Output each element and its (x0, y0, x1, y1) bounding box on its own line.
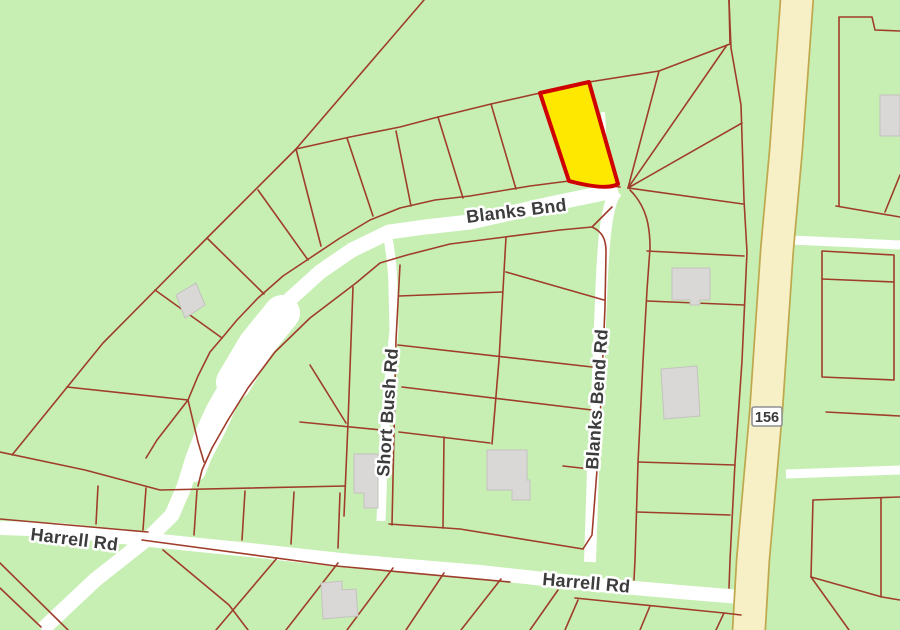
svg-text:156: 156 (755, 410, 779, 426)
